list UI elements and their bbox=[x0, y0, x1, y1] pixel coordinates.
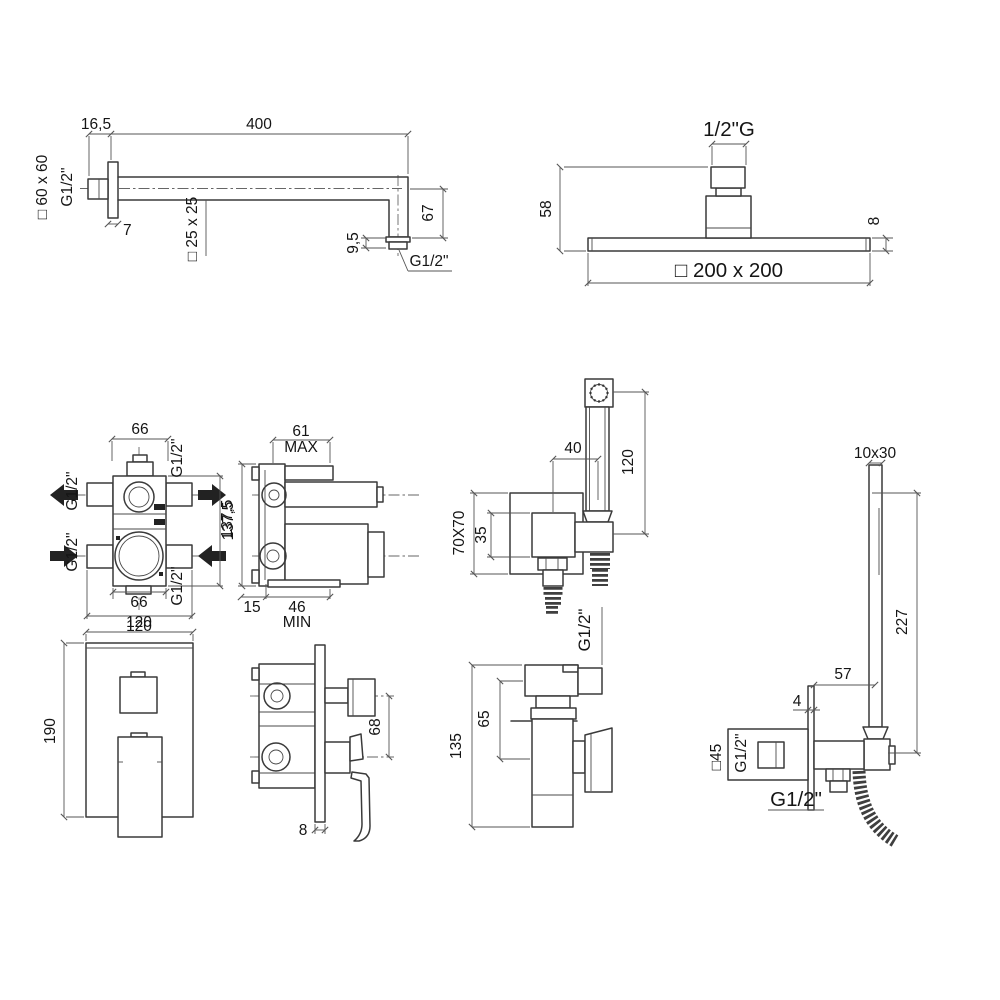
dim-label-section-10x30: 10x30 bbox=[854, 445, 897, 462]
thread-label-bl: G1/2" bbox=[64, 532, 81, 571]
wall-union-g12 bbox=[758, 742, 784, 768]
wall-connector-shape bbox=[88, 179, 108, 199]
dim-label-axis-65: 65 bbox=[476, 710, 493, 727]
dim-label-head-height: 58 bbox=[538, 200, 555, 217]
diverter-knob-side bbox=[348, 679, 375, 716]
head-connector-base bbox=[706, 196, 751, 238]
thread-label-outlet: G1/2" bbox=[770, 788, 822, 811]
handset-inner-plate bbox=[532, 513, 575, 557]
arm-tube-shape bbox=[118, 177, 408, 237]
valve-brand-mark bbox=[154, 504, 165, 510]
handset-outlet-drawing: 10x30 227 57 4 □45 G1/2" G1/2" bbox=[708, 445, 921, 841]
dim-label-plate-height: 190 bbox=[42, 718, 59, 744]
dim-label-inner-35: 35 bbox=[473, 526, 490, 543]
dim-label-flange-thickness: 7 bbox=[123, 222, 132, 239]
shower-head-drawing: 1/2"G 58 8 □ 200 x 200 bbox=[538, 118, 893, 286]
thread-label-wall-union: G1/2" bbox=[733, 733, 750, 772]
trim-plate-drawing: 120 190 bbox=[42, 614, 193, 837]
diverter-knob bbox=[120, 677, 157, 713]
dim-label-spacing-68: 68 bbox=[367, 718, 384, 735]
valve-stub-bl bbox=[87, 545, 113, 568]
dim-label-length-227: 227 bbox=[894, 609, 911, 635]
dim-label-valve-side-height: 137,5 bbox=[220, 502, 237, 541]
angle-valve-drawing: G1/2" 65 135 bbox=[448, 607, 612, 827]
dim-label-plate-thk-8: 8 bbox=[299, 822, 308, 839]
valve-side-drawing: 61 MAX 137,5 15 46 MIN bbox=[220, 423, 420, 631]
head-connector-nut bbox=[711, 167, 745, 188]
dim-label-plate-width: 120 bbox=[126, 614, 152, 631]
hose-outlet-nut bbox=[826, 769, 850, 781]
supply-nut bbox=[538, 558, 567, 570]
angle-valve-lower-body bbox=[532, 719, 573, 827]
flexible-hose bbox=[859, 771, 895, 841]
valve-stub-tl bbox=[87, 483, 113, 506]
handset-bracket-drawing: 40 120 70X70 35 bbox=[451, 379, 649, 616]
dim-label-15: 15 bbox=[243, 599, 260, 616]
handset-holder-block bbox=[575, 522, 613, 552]
dim-label-head-thickness: 8 bbox=[866, 217, 883, 226]
thread-label-br: G1/2" bbox=[169, 566, 186, 605]
mixer-wall-plate bbox=[315, 645, 325, 822]
valve-side-body bbox=[259, 464, 285, 586]
dim-label-height-135: 135 bbox=[448, 733, 465, 759]
valve-upper-cartridge bbox=[285, 482, 377, 507]
dim-label-square-45: □45 bbox=[708, 744, 725, 771]
handset-handle-right bbox=[869, 465, 882, 727]
dim-label-tube-size: □ 25 x 25 bbox=[184, 197, 201, 262]
dim-label-arm-drop: 67 bbox=[420, 204, 437, 221]
head-plate-shape bbox=[588, 238, 870, 251]
shower-system-drawing: 16,5 400 □ 60 x 60 G1/2" 7 □ 25 x 25 67 … bbox=[0, 0, 1000, 1000]
thread-label-angle-valve: G1/2" bbox=[575, 609, 594, 652]
dim-note-min: MIN bbox=[283, 614, 311, 631]
angle-valve-handle bbox=[585, 728, 612, 792]
thread-label-tl: G1/2" bbox=[64, 471, 81, 510]
dim-label-valve-width-top: 66 bbox=[131, 421, 148, 438]
mixer-lever-side bbox=[351, 772, 370, 841]
outlet-arm bbox=[814, 741, 864, 769]
dim-label-plate-thk-4: 4 bbox=[793, 693, 802, 710]
dim-label-depth-max: 61 bbox=[292, 423, 309, 440]
dim-label-plate-70: 70X70 bbox=[451, 510, 468, 555]
valve-stub-br bbox=[166, 545, 192, 568]
supply-thread-icon bbox=[552, 587, 553, 616]
dim-label-reach-57: 57 bbox=[834, 666, 851, 683]
dim-label-head-thread: 1/2"G bbox=[703, 118, 755, 141]
dim-note-max: MAX bbox=[284, 439, 318, 456]
wall-flange-shape bbox=[108, 162, 118, 218]
flow-arrow-in-right-icon bbox=[198, 545, 226, 567]
valve-lower-cartridge bbox=[285, 524, 368, 584]
arm-end-thread bbox=[389, 242, 407, 249]
dim-label-handset-length: 120 bbox=[620, 449, 637, 475]
handset-head bbox=[585, 379, 613, 407]
dim-label-handset-offset: 40 bbox=[564, 440, 582, 457]
dim-label-arm-wall-thread: G1/2" bbox=[59, 167, 76, 206]
dim-label-arm-offset: 16,5 bbox=[81, 116, 111, 133]
dim-label-arm-tip: 9,5 bbox=[345, 232, 362, 254]
shower-arm-drawing: 16,5 400 □ 60 x 60 G1/2" 7 □ 25 x 25 67 … bbox=[34, 116, 452, 271]
technical-drawing-sheet: 16,5 400 □ 60 x 60 G1/2" 7 □ 25 x 25 67 … bbox=[0, 0, 1000, 1000]
dim-label-flange-size: □ 60 x 60 bbox=[34, 154, 51, 219]
thread-label-tr: G1/2" bbox=[169, 438, 186, 477]
mixer-lever-front bbox=[118, 737, 162, 837]
dim-label-arm-length: 400 bbox=[246, 116, 272, 133]
valve-front-drawing: 66 G1/2" G1/2" G1/2" G1/2" 137,5 66 120 bbox=[50, 421, 236, 635]
handset-holder-right bbox=[864, 739, 890, 770]
mixer-side-drawing: 68 8 bbox=[250, 645, 394, 841]
dim-label-arm-end-thread: G1/2" bbox=[409, 253, 448, 270]
dim-label-head-size: □ 200 x 200 bbox=[675, 259, 783, 282]
valve-stub-tr bbox=[166, 483, 192, 506]
angle-valve-outlet-stub bbox=[578, 668, 602, 694]
dim-label-valve-width-bottom: 66 bbox=[130, 594, 147, 611]
head-connector-neck bbox=[716, 188, 741, 196]
